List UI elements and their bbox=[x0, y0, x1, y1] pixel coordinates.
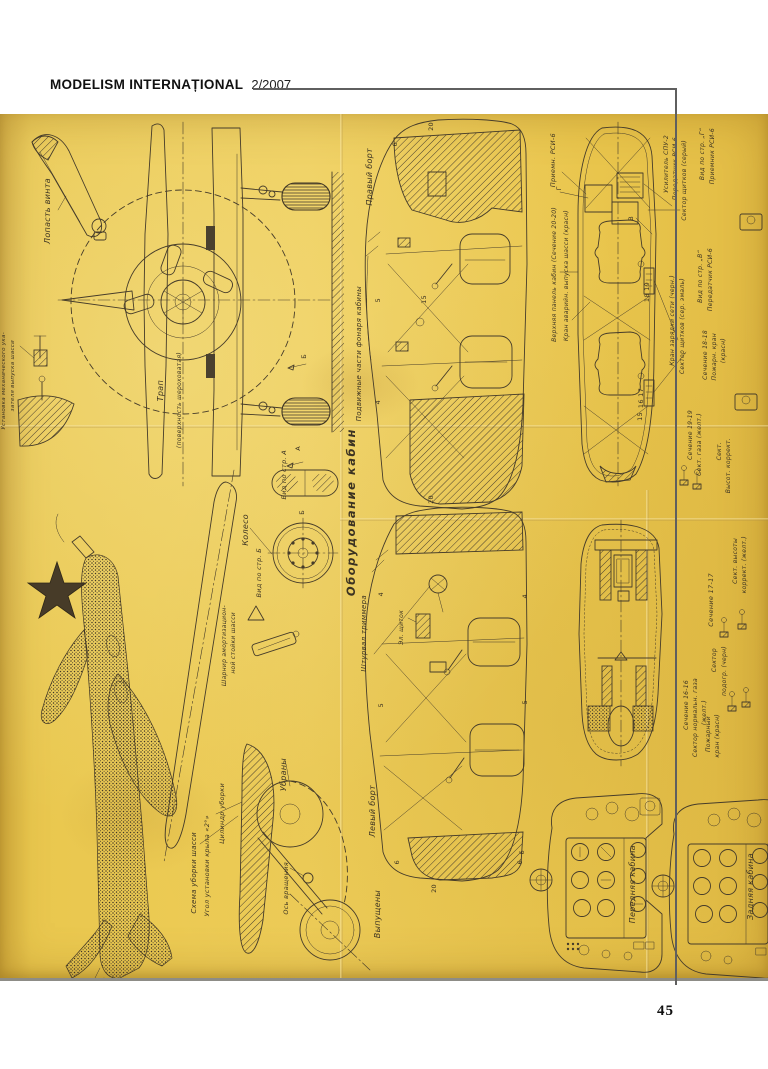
page-header: MODELISM INTERNAȚIONAL2/2007 bbox=[50, 74, 291, 93]
frame-number: 4 bbox=[375, 400, 382, 404]
label-heat-sector-1: Сектор bbox=[712, 648, 718, 672]
label-throttle-sector: Сект. газа (желт.) bbox=[697, 413, 703, 476]
view-marker-g: Г bbox=[556, 186, 563, 190]
page-number: 45 bbox=[657, 1003, 674, 1020]
label-propeller-blade: Лопасть винта bbox=[44, 178, 52, 244]
frame-number: 4 bbox=[522, 594, 529, 598]
label-rough-surface: (поверхность шероховатая) bbox=[177, 352, 183, 448]
gear-retraction-scheme bbox=[216, 744, 370, 970]
label-view-v-2: Передатчик РСИ-6 bbox=[708, 248, 714, 311]
label-wheel: Колесо bbox=[242, 514, 250, 546]
floor-plan bbox=[579, 520, 662, 766]
label-heat-sector-2: подогр. (черн) bbox=[722, 646, 728, 696]
label-view-g-1: Вид по стр. „Г“ bbox=[700, 128, 706, 180]
label-shock-hinge-1: Шарнир амортизацион- bbox=[222, 605, 228, 686]
gear-indicator-details bbox=[18, 336, 74, 446]
label-flap-sector-gray: Сектор щитков (серый) bbox=[682, 140, 688, 221]
frame-number: 18 19 bbox=[644, 282, 651, 302]
label-shock-hinge-2: ной стойки шасси bbox=[231, 612, 237, 674]
label-normal-throttle-1: Сектор нормальн. газа bbox=[693, 678, 699, 757]
frame-number: 5 bbox=[375, 298, 382, 302]
label-altitude-corrector: Высот. коррект. bbox=[726, 438, 732, 493]
label-section-18: Сечение 18-18 bbox=[703, 330, 709, 380]
label-section-17: Сечение 17-17 bbox=[708, 573, 715, 627]
label-electric-panel: Эл. щиток bbox=[399, 610, 405, 645]
label-gear-indicator-2: зателя выпуска шасси bbox=[11, 340, 17, 411]
frame-number: 16 17 bbox=[638, 388, 645, 408]
label-view-a: Вид по стр. А bbox=[281, 450, 288, 500]
label-port-side: Левый борт bbox=[369, 785, 377, 837]
frame-number: 5 bbox=[522, 700, 529, 704]
label-sect-short: Сект. bbox=[717, 442, 723, 460]
label-starboard-side: Правый борт bbox=[366, 148, 374, 206]
label-alt-corrector-17-2: коррект. (желт.) bbox=[742, 536, 748, 593]
label-retracted: Убраны bbox=[280, 758, 288, 791]
frame-number: 20 bbox=[431, 884, 438, 893]
label-canopy-moving-parts: Подвижные части фонаря кабины bbox=[356, 286, 363, 421]
port-cutaway bbox=[365, 507, 527, 881]
label-fire-cock-16-1: Пожарный bbox=[706, 716, 712, 752]
frame-number: 15 bbox=[421, 295, 428, 304]
label-rear-cabin: Задняя кабина bbox=[747, 853, 755, 920]
upper-panel-plan bbox=[560, 122, 656, 486]
shock-strut-details bbox=[248, 606, 299, 657]
view-marker-b-wheel: Б bbox=[299, 510, 306, 515]
view-marker-b-front: Б bbox=[301, 354, 308, 359]
label-trim-wheel: Штурвал триммера bbox=[361, 595, 368, 672]
label-view-b: Вид по стр. Б bbox=[256, 548, 263, 598]
magazine-page: MODELISM INTERNAȚIONAL2/2007 bbox=[0, 0, 768, 1069]
starboard-cutaway bbox=[365, 119, 527, 509]
label-flap-sector-enamel: Сектор щитков (сер. эмаль) bbox=[680, 278, 686, 374]
label-front-cabin: Передняя кабина bbox=[629, 845, 637, 923]
label-section-16: Сечение 16-16 bbox=[684, 680, 690, 730]
magazine-title: MODELISM INTERNAȚIONAL bbox=[50, 77, 243, 92]
view-marker-a: А bbox=[295, 446, 302, 451]
label-fire-cock-18-1: Пожарн. кран bbox=[712, 333, 718, 380]
label-gear-indicator-1: Установка механического ука- bbox=[2, 332, 8, 430]
label-view-v-1: Вид по стр. „В“ bbox=[698, 250, 704, 303]
section-sketches bbox=[680, 214, 762, 711]
label-extended: Выпущены bbox=[374, 890, 382, 938]
label-receiver-rsi6: Приемн. РСИ-6 bbox=[550, 133, 557, 187]
label-alt-corrector-17-1: Сект. высоты bbox=[733, 538, 739, 584]
view-marker-v: В bbox=[628, 216, 635, 221]
label-emergency-gear-valve: Кран аварийн. выпуска шасси (красн) bbox=[564, 210, 570, 341]
frame-number: 6 bbox=[392, 142, 399, 146]
label-view-g-2: Приемник РСИ-6 bbox=[710, 128, 716, 184]
label-rotation-axis: Ось вращения bbox=[283, 862, 290, 915]
label-section-19: Сечение 19-19 bbox=[688, 410, 694, 460]
front-instrument-panel bbox=[530, 794, 662, 973]
frame-number: 15 bbox=[637, 412, 644, 421]
front-view bbox=[58, 122, 344, 486]
column-rule bbox=[675, 88, 677, 985]
label-gear-scheme: Схема уборки шасси bbox=[191, 832, 198, 914]
label-cockpit-equipment-title: Оборудование кабин bbox=[346, 428, 358, 596]
header-rule bbox=[253, 88, 676, 90]
label-wing-incidence: Угол установки крыла «2°» bbox=[204, 815, 211, 916]
plan-drawing bbox=[0, 114, 768, 978]
frame-number: 6 bbox=[517, 860, 524, 864]
label-upper-panel: Верхняя панель кабин (Сечение 20-20) bbox=[552, 207, 558, 342]
aircraft-perspective bbox=[28, 514, 177, 978]
frame-number: 20 bbox=[428, 122, 435, 131]
frame-number: 6 bbox=[394, 860, 401, 864]
wheel-detail bbox=[250, 462, 338, 588]
frame-number: 6 bbox=[519, 850, 526, 854]
frame-number: 4 bbox=[378, 592, 385, 596]
label-amplifier-spu2: Усилитель СПУ-2 bbox=[664, 135, 670, 193]
label-fire-cock-16-2: кран (красн) bbox=[715, 714, 721, 758]
frame-number: 5 bbox=[378, 703, 385, 707]
frame-number: 20 bbox=[428, 495, 435, 504]
label-retraction-cylinder: Цилиндр уборки bbox=[219, 783, 226, 844]
label-walkway: Трап bbox=[157, 380, 165, 401]
scanned-plan-sheet: Лопасть винта Установка механического ук… bbox=[0, 114, 768, 981]
label-fire-cock-18-2: (красн) bbox=[721, 338, 727, 363]
